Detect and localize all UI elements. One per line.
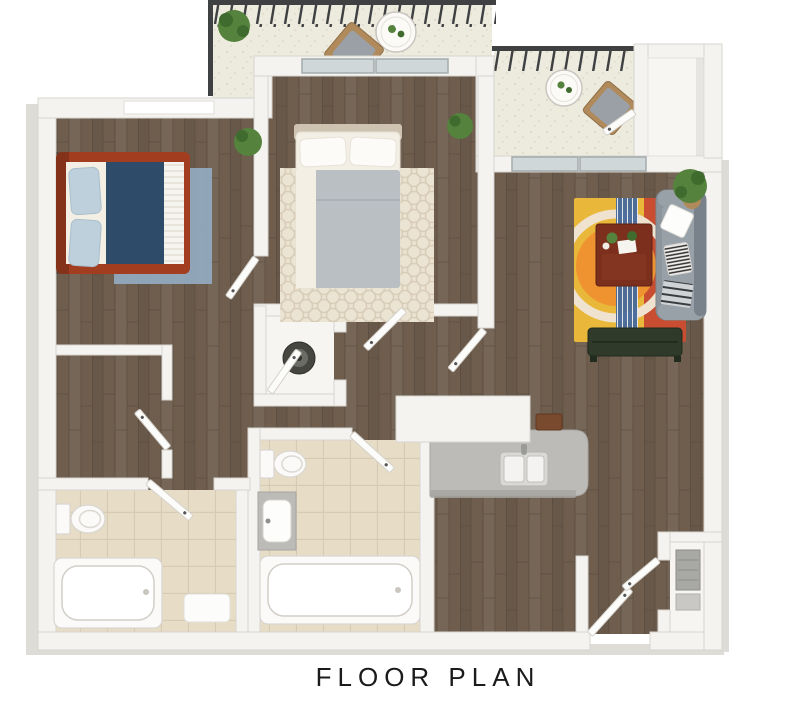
balcony-railing-icon bbox=[208, 0, 496, 5]
bedroom-window bbox=[124, 101, 214, 114]
balcony-railing-side bbox=[208, 0, 213, 96]
coffee-table bbox=[596, 224, 652, 286]
patio-table-icon bbox=[376, 12, 416, 52]
kitchen-bar-wall bbox=[396, 396, 530, 442]
bathtub-icon bbox=[54, 558, 162, 628]
floor-plan-image: FLOOR PLAN bbox=[0, 0, 787, 703]
entry-closet bbox=[676, 550, 700, 610]
floor-plan-title: FLOOR PLAN bbox=[316, 662, 541, 692]
potted-plant-icon bbox=[234, 128, 262, 156]
storage-closet-floor bbox=[648, 58, 704, 156]
balcony-railing-bars bbox=[492, 51, 634, 71]
sofa bbox=[656, 190, 706, 320]
foot-blanket bbox=[164, 162, 184, 264]
zebra-pillow bbox=[664, 242, 693, 276]
vanity-sink-icon bbox=[258, 492, 296, 550]
bath-mat bbox=[184, 594, 230, 622]
potted-plant-icon bbox=[447, 113, 473, 139]
floor-plan-svg: FLOOR PLAN bbox=[0, 0, 787, 703]
bathtub-icon bbox=[260, 556, 420, 624]
patio-table-icon bbox=[546, 70, 582, 106]
bed-blanket bbox=[106, 162, 164, 264]
queen-bed bbox=[294, 124, 402, 288]
toilet-icon bbox=[56, 504, 105, 534]
balcony-railing-icon bbox=[492, 46, 634, 51]
queen-bed bbox=[56, 152, 190, 274]
potted-plant-icon bbox=[218, 10, 250, 42]
cutting-board-icon bbox=[536, 414, 562, 430]
striped-throw bbox=[660, 280, 693, 308]
toilet-icon bbox=[260, 450, 306, 478]
